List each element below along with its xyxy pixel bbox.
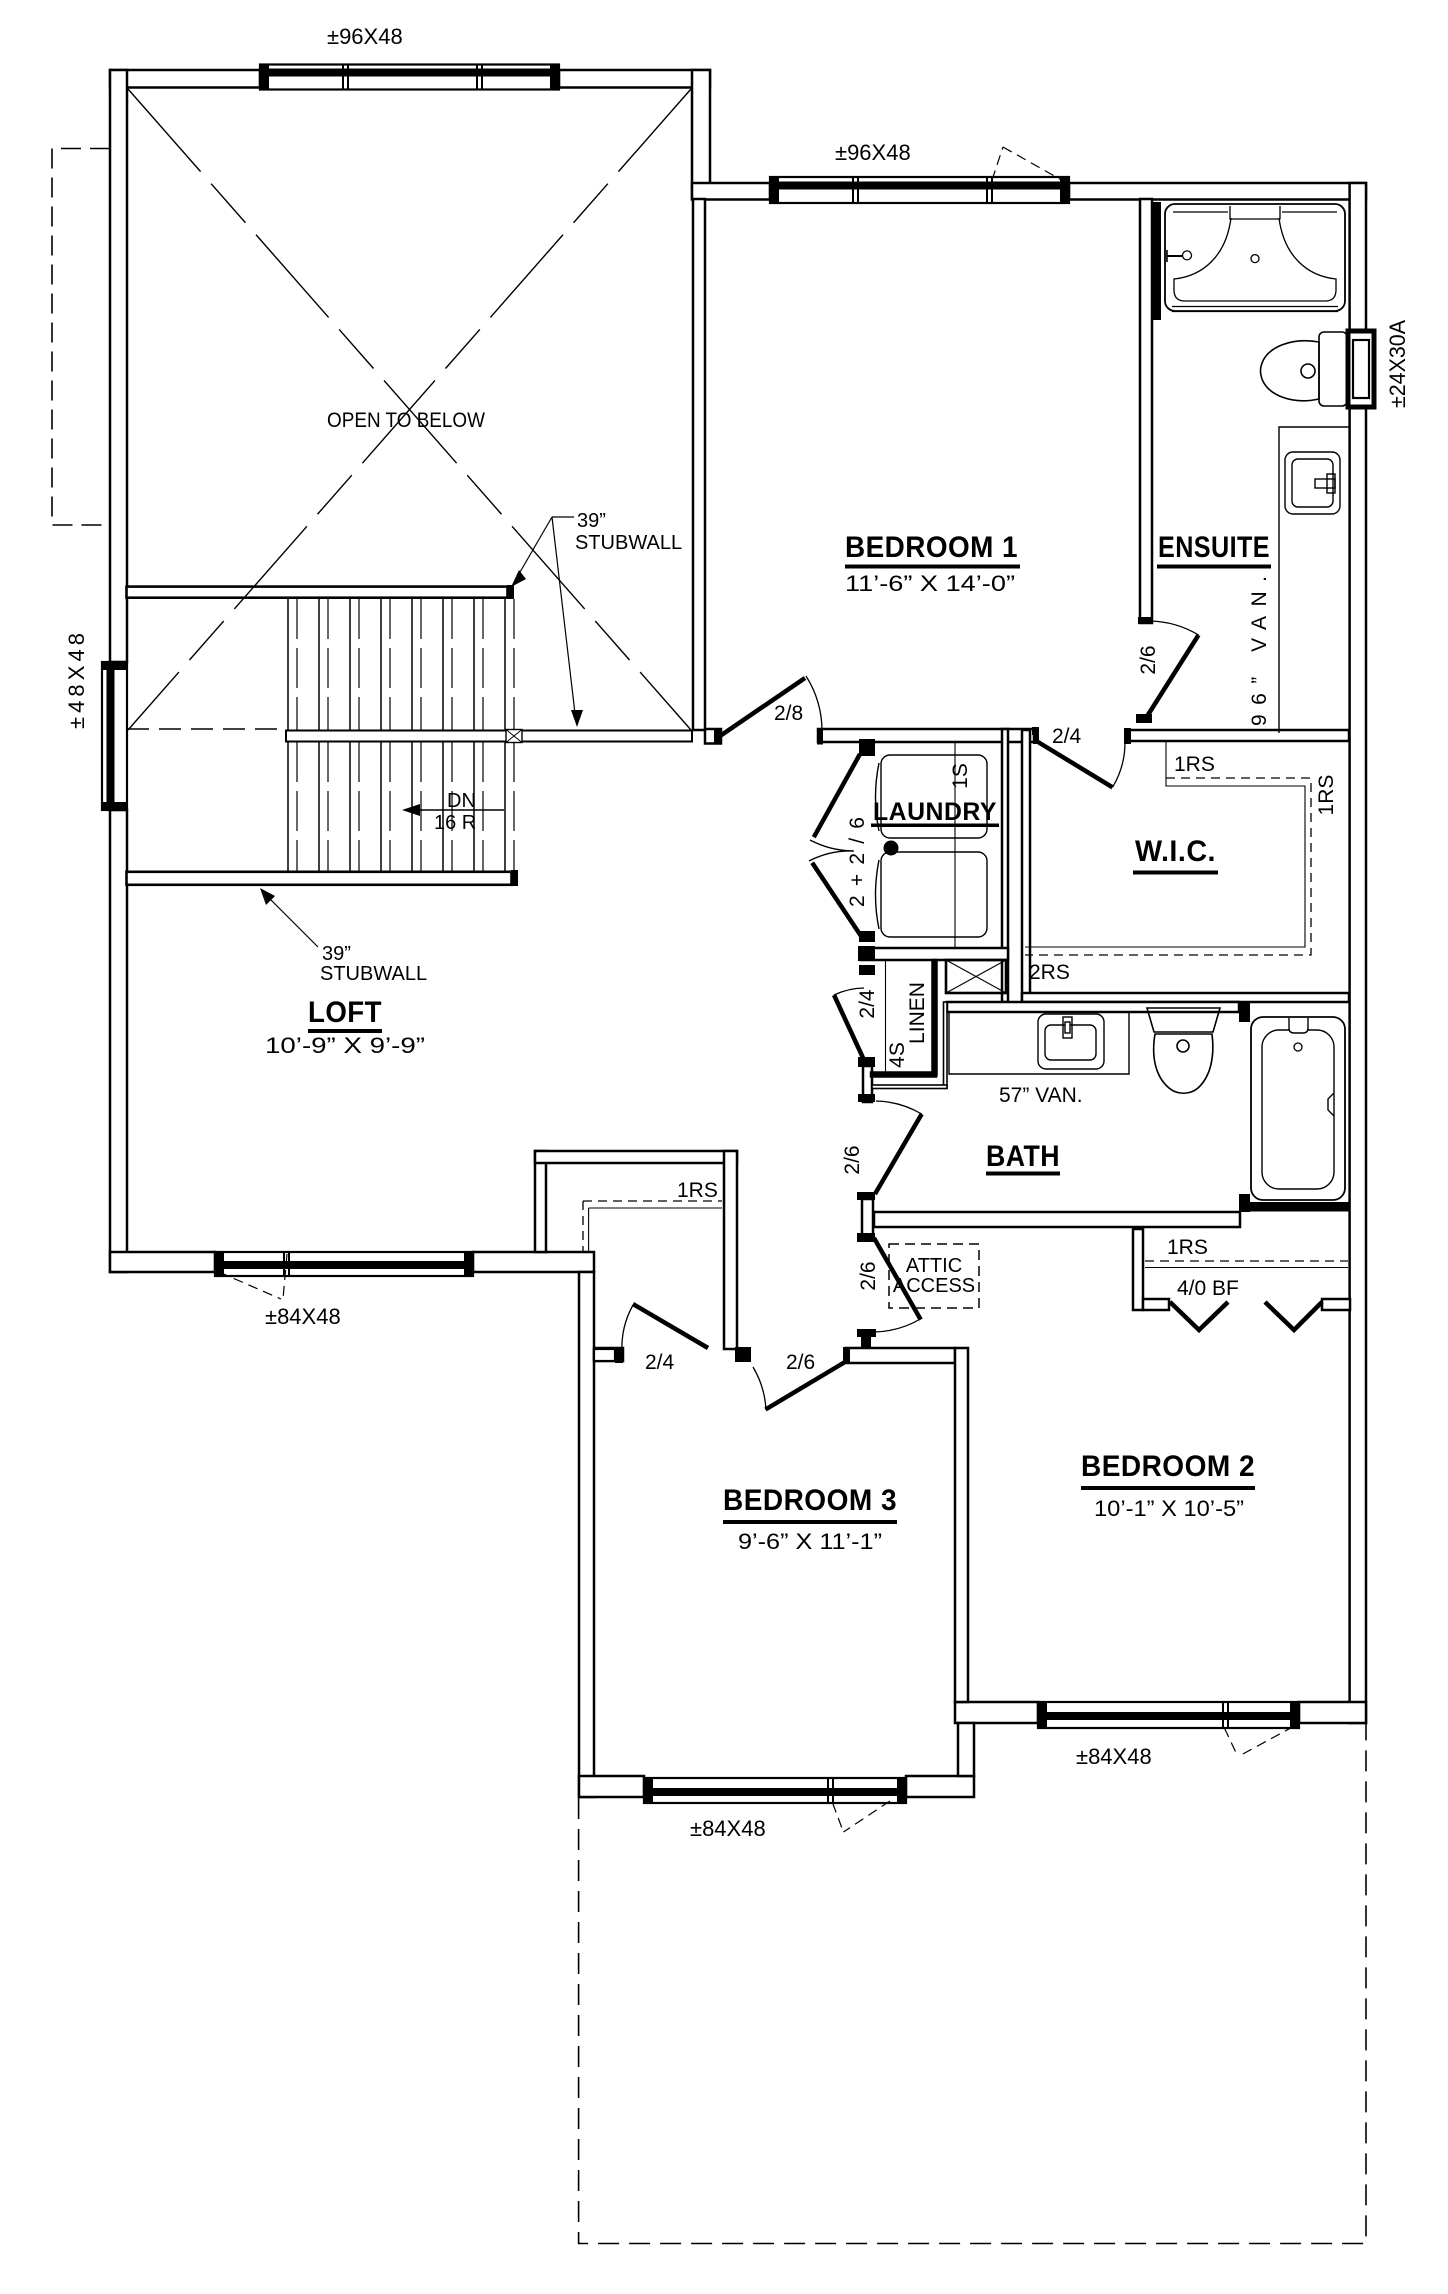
svg-text:39”: 39” — [322, 943, 351, 965]
svg-text:STUBWALL: STUBWALL — [320, 963, 427, 985]
svg-text:±84X48: ±84X48 — [1076, 1744, 1152, 1769]
svg-text:STUBWALL: STUBWALL — [575, 532, 682, 554]
svg-text:96” VAN.: 96” VAN. — [1248, 576, 1271, 726]
svg-text:±96X48: ±96X48 — [327, 24, 403, 49]
svg-text:DN: DN — [447, 790, 476, 812]
svg-text:LOFT: LOFT — [308, 996, 382, 1029]
svg-text:4S: 4S — [886, 1042, 909, 1068]
svg-text:±24X30A: ±24X30A — [1385, 320, 1410, 408]
svg-text:ATTIC: ATTIC — [906, 1255, 962, 1277]
svg-text:2/4: 2/4 — [1052, 725, 1082, 748]
svg-text:2/6: 2/6 — [786, 1351, 815, 1374]
svg-text:1RS: 1RS — [677, 1179, 718, 1202]
svg-text:LAUNDRY: LAUNDRY — [873, 798, 997, 826]
svg-text:57” VAN.: 57” VAN. — [999, 1084, 1083, 1107]
svg-text:BEDROOM 1: BEDROOM 1 — [845, 531, 1018, 564]
svg-text:±84X48: ±84X48 — [690, 1816, 766, 1841]
svg-text:2/4: 2/4 — [856, 989, 879, 1019]
svg-text:2/6: 2/6 — [841, 1145, 864, 1174]
svg-text:±96X48: ±96X48 — [835, 140, 911, 165]
svg-text:1S: 1S — [949, 763, 972, 789]
svg-text:39”: 39” — [577, 510, 606, 532]
svg-text:ENSUITE: ENSUITE — [1158, 531, 1270, 564]
svg-text:10’-1” X 10’-5”: 10’-1” X 10’-5” — [1094, 1496, 1244, 1521]
svg-text:2/6: 2/6 — [1137, 645, 1160, 674]
svg-text:1RS: 1RS — [1174, 753, 1215, 776]
svg-text:10’-9” X 9’-9”: 10’-9” X 9’-9” — [265, 1033, 425, 1058]
svg-text:1RS: 1RS — [1315, 775, 1338, 816]
svg-text:±84X48: ±84X48 — [265, 1304, 341, 1329]
svg-text:ACCESS: ACCESS — [893, 1275, 975, 1297]
svg-text:9’-6” X 11’-1”: 9’-6” X 11’-1” — [738, 1529, 882, 1554]
svg-text:4/0 BF: 4/0 BF — [1177, 1277, 1239, 1300]
svg-text:BATH: BATH — [986, 1140, 1060, 1173]
svg-text:OPEN TO BELOW: OPEN TO BELOW — [327, 409, 485, 432]
svg-text:LINEN: LINEN — [906, 982, 929, 1044]
svg-text:BEDROOM 2: BEDROOM 2 — [1081, 1450, 1255, 1483]
svg-text:16 R: 16 R — [434, 812, 476, 834]
svg-text:1RS: 1RS — [1167, 1236, 1208, 1259]
svg-text:11’-6” X 14’-0”: 11’-6” X 14’-0” — [845, 571, 1015, 596]
svg-text:BEDROOM 3: BEDROOM 3 — [723, 1484, 897, 1517]
svg-text:2/6: 2/6 — [857, 1261, 880, 1290]
svg-text:2/8: 2/8 — [774, 702, 803, 725]
svg-text:2/4: 2/4 — [645, 1351, 675, 1374]
svg-text:W.I.C.: W.I.C. — [1135, 835, 1216, 868]
svg-text:2RS: 2RS — [1029, 961, 1070, 984]
